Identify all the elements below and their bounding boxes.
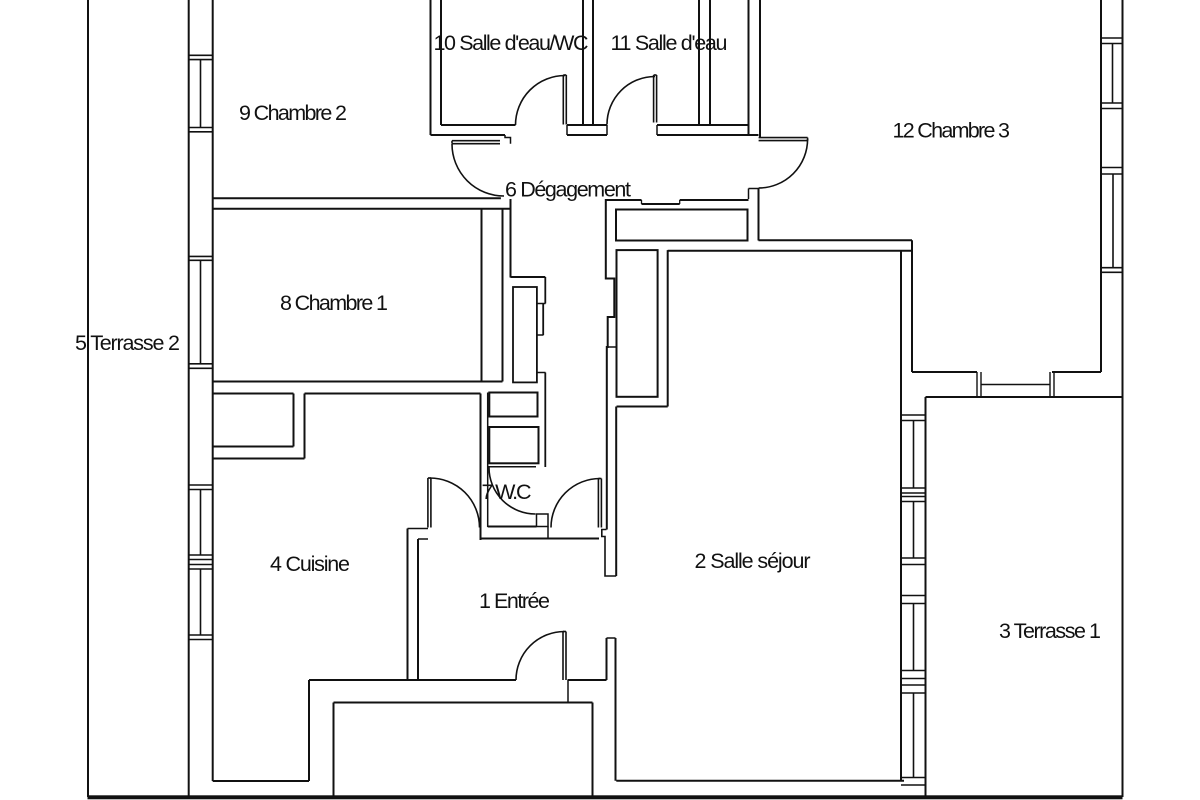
svg-text:9 Chambre 2: 9 Chambre 2 xyxy=(239,101,347,125)
svg-text:6 Dégagement: 6 Dégagement xyxy=(505,178,631,202)
svg-text:4 Cuisine: 4 Cuisine xyxy=(270,552,350,576)
svg-text:1 Entrée: 1 Entrée xyxy=(479,589,550,613)
svg-text:5 Terrasse 2: 5 Terrasse 2 xyxy=(75,331,180,355)
svg-text:8 Chambre 1: 8 Chambre 1 xyxy=(280,291,388,315)
svg-text:2 Salle séjour: 2 Salle séjour xyxy=(695,549,811,573)
svg-text:11 Salle d'eau: 11 Salle d'eau xyxy=(611,31,728,55)
svg-text:10 Salle d'eau/WC: 10 Salle d'eau/WC xyxy=(434,31,589,55)
svg-text:3 Terrasse 1: 3 Terrasse 1 xyxy=(999,619,1101,643)
svg-text:7 W.C: 7 W.C xyxy=(482,480,532,504)
svg-text:12 Chambre 3: 12 Chambre 3 xyxy=(893,119,1011,143)
